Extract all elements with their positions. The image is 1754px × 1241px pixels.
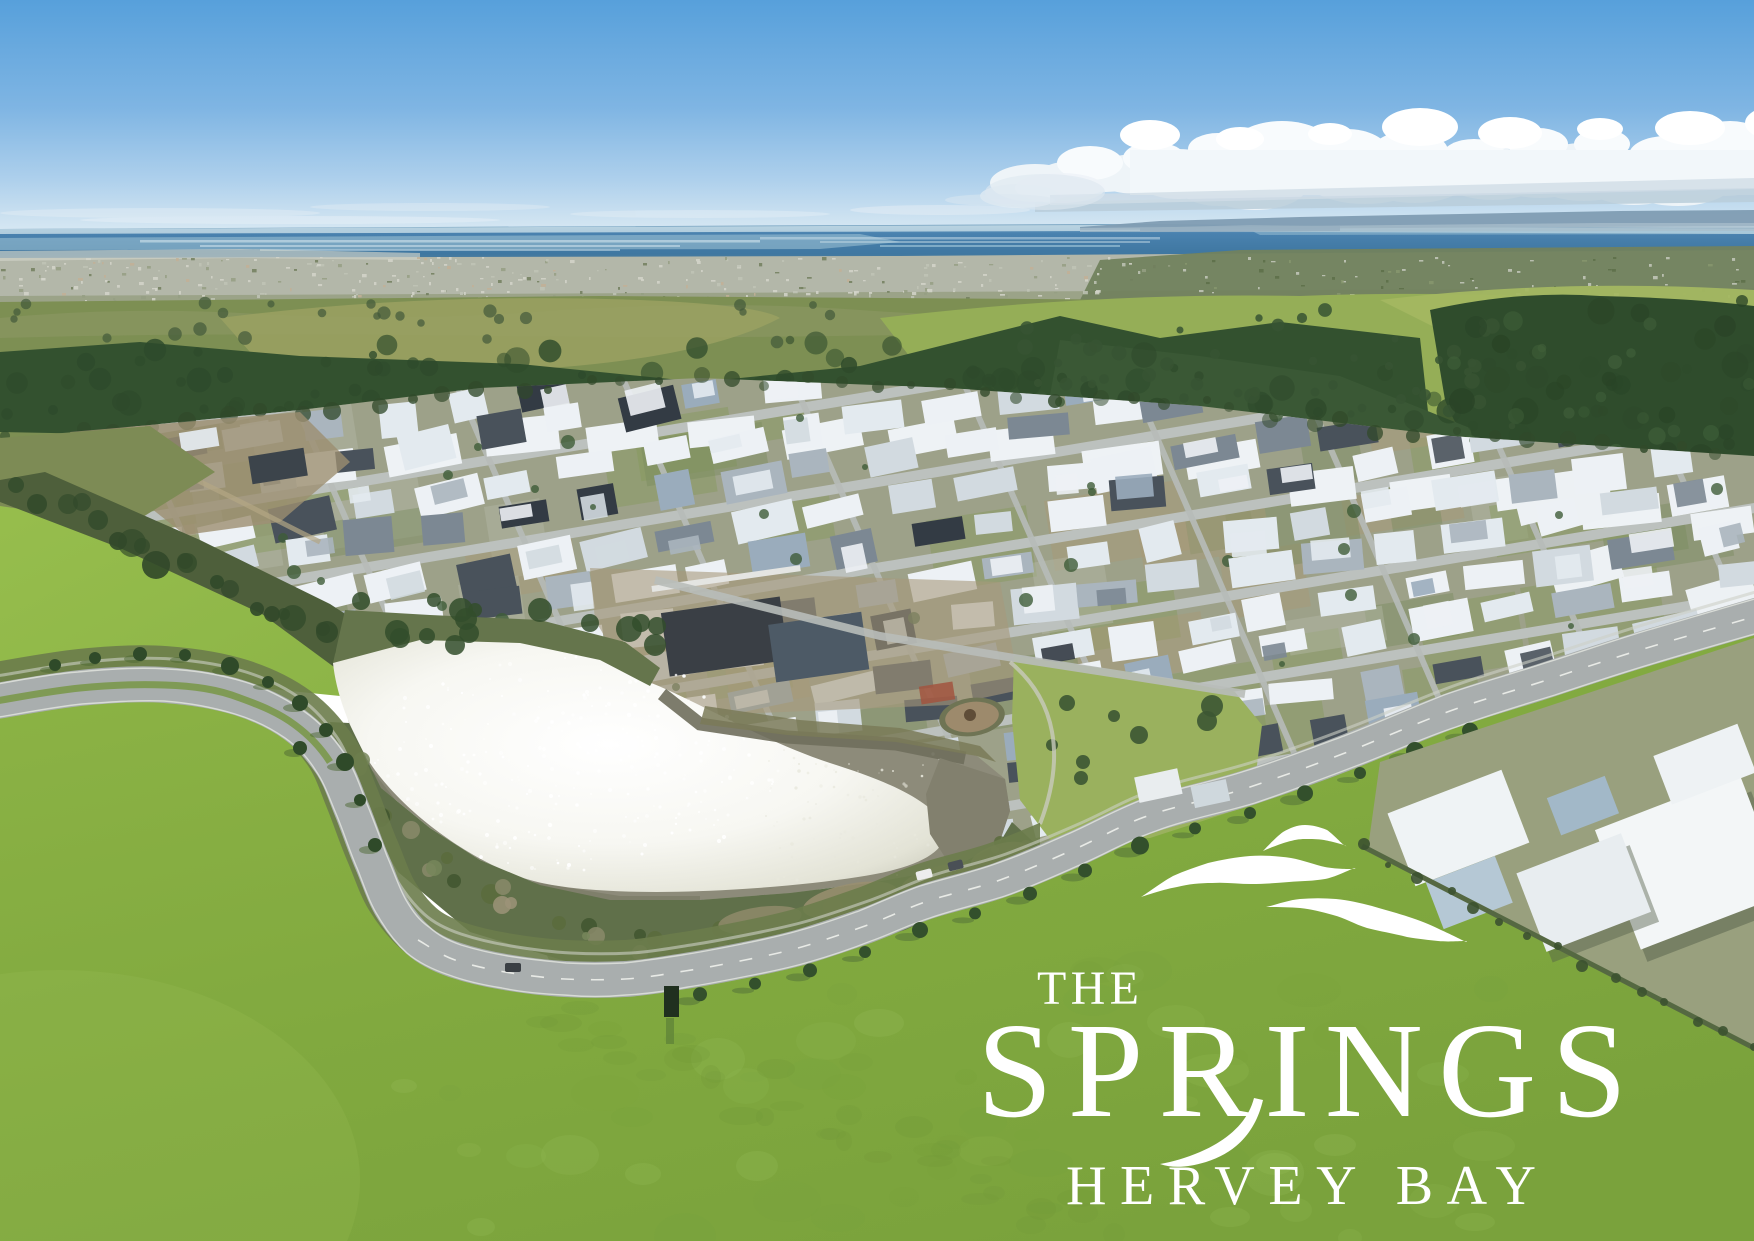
svg-text:HERVEY BAY: HERVEY BAY [1066, 1155, 1536, 1217]
svg-text:SPRINGS: SPRINGS [977, 996, 1627, 1146]
